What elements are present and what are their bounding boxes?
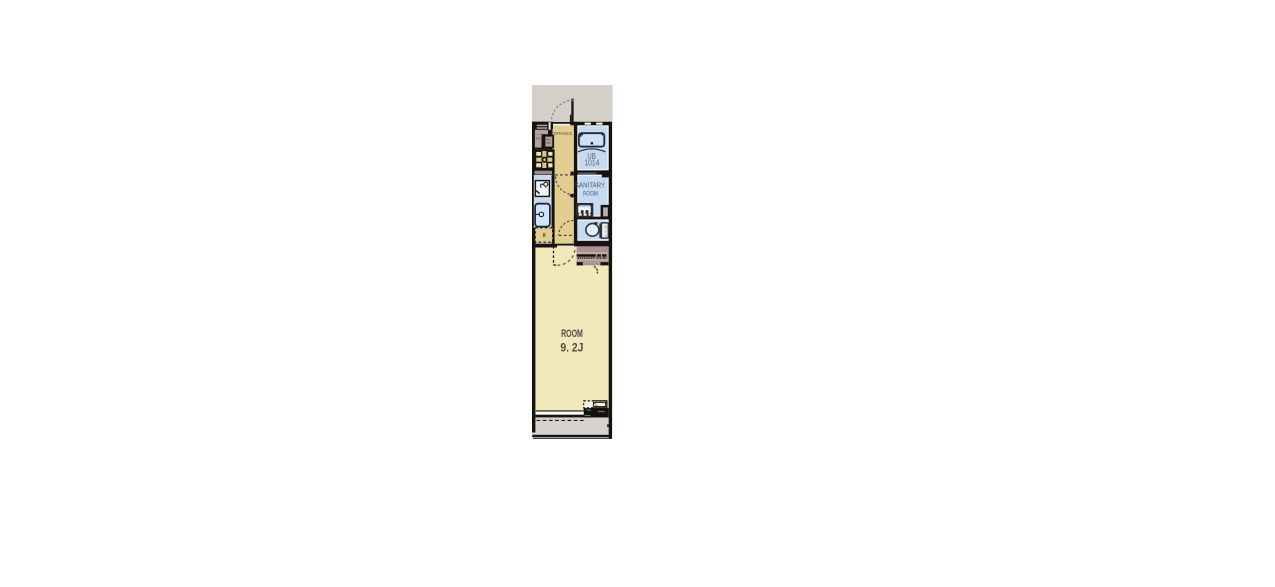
svg-text:1014: 1014 xyxy=(584,158,599,168)
svg-text:ROOM: ROOM xyxy=(561,326,583,339)
svg-text:ENTRANCE: ENTRANCE xyxy=(552,130,573,136)
svg-text:ROOM: ROOM xyxy=(583,191,598,198)
svg-text:BOX: BOX xyxy=(547,142,551,145)
svg-text:SANITARY: SANITARY xyxy=(575,182,606,189)
svg-text:9. 2J: 9. 2J xyxy=(560,342,583,355)
svg-text:PS: PS xyxy=(536,137,539,142)
